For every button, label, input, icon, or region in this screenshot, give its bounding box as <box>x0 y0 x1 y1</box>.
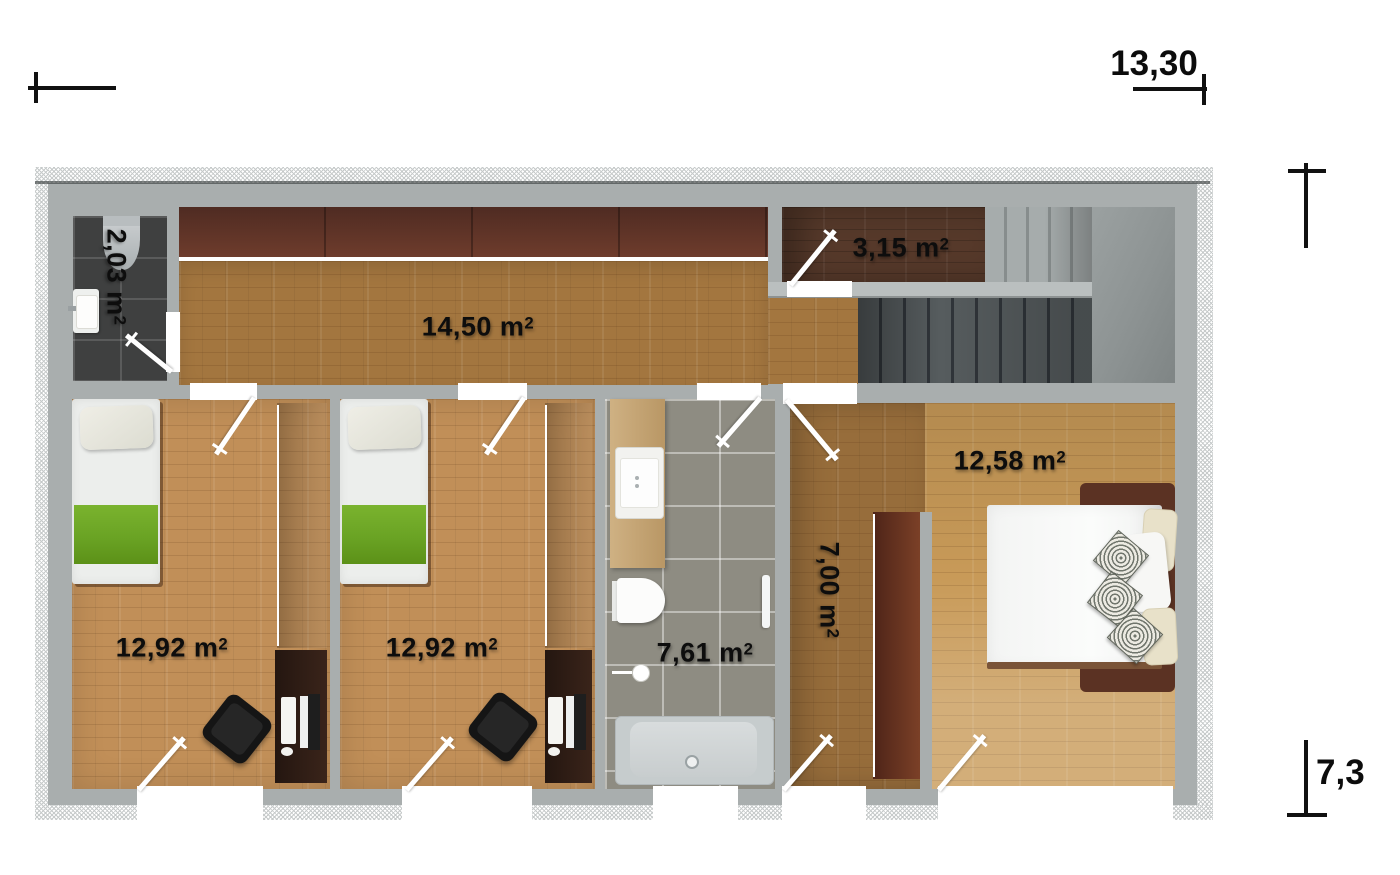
hallway-wardrobe <box>179 207 768 257</box>
wc-sink-basin <box>76 295 98 329</box>
stairs-mid-landing <box>1092 207 1175 383</box>
stairs-upper-flight <box>985 207 1092 282</box>
bedroom-left-keyboard <box>281 697 296 744</box>
room-label-dressing: 7,00 m2 <box>814 542 845 639</box>
window-master-bedroom <box>938 786 1173 821</box>
bathroom-towel-radiator <box>762 575 770 628</box>
door-opening-bedroom-left <box>190 383 257 400</box>
dimension-tick-top-left <box>34 72 38 103</box>
bedroom-middle-pillow <box>347 405 421 451</box>
room-label-bedroom-middle: 12,92 m2 <box>386 633 498 664</box>
room-label-stair-landing: 3,15 m2 <box>853 233 950 264</box>
window-dressing <box>782 786 866 821</box>
bathroom-sink-tap-dot1 <box>635 476 639 480</box>
wall-top-edge-shadow <box>35 181 1210 184</box>
dressing-partial-wall <box>920 512 932 789</box>
bedroom-middle-monitor-back <box>574 694 586 750</box>
dressing-wardrobe <box>873 512 920 779</box>
bathroom-paper-holder <box>632 664 650 682</box>
dimension-label-width: 13,30 <box>1098 44 1210 84</box>
floor-plan: 2,03 m2 14,50 m2 3,15 m2 12,92 m2 12,92 … <box>35 165 1213 820</box>
wall-texture-left <box>35 167 48 820</box>
bedroom-left-wardrobe-door-gap <box>277 405 279 646</box>
bathroom-paper-holder-arm <box>612 671 632 674</box>
dimension-tick-right-bottom <box>1287 813 1327 817</box>
window-bedroom-middle <box>402 786 532 821</box>
dimension-tick-right-top <box>1288 169 1326 173</box>
wc-sink-tap <box>68 306 76 311</box>
dimension-line-top-left <box>28 86 116 90</box>
bedroom-left-wardrobe <box>277 403 327 648</box>
hallway-floor-extension <box>768 296 858 384</box>
bedroom-middle-wardrobe-door-gap <box>545 405 547 646</box>
dimension-label-depth: 7,3 <box>1316 753 1365 793</box>
door-opening-bathroom <box>697 383 761 400</box>
stairs-lower-flight <box>858 296 1092 383</box>
dimension-line-right-bottom <box>1304 740 1308 817</box>
door-opening-stair-landing <box>787 281 852 297</box>
room-label-master: 12,58 m2 <box>954 446 1066 477</box>
bedroom-left-monitor <box>300 696 308 748</box>
wall-texture-right <box>1197 167 1213 820</box>
bathroom-toilet-bowl <box>617 578 665 623</box>
dimension-line-top-right <box>1133 87 1207 91</box>
door-opening-dressing <box>783 383 857 404</box>
bedroom-left-monitor-back <box>308 694 320 750</box>
bathroom-sink-tap-dot2 <box>635 484 639 488</box>
window-bedroom-left <box>137 786 263 821</box>
bedroom-middle-keyboard <box>548 697 563 744</box>
door-opening-wc <box>166 312 180 372</box>
bedroom-left-blanket <box>74 505 158 564</box>
bedroom-middle-monitor <box>566 696 574 748</box>
room-label-bedroom-left: 12,92 m2 <box>116 633 228 664</box>
bathroom-bathtub-drain <box>685 755 699 769</box>
room-label-hallway: 14,50 m2 <box>422 312 534 343</box>
bedroom-middle-wardrobe <box>545 403 592 648</box>
bedroom-middle-mouse <box>548 747 560 756</box>
room-label-wc: 2,03 m2 <box>101 229 132 326</box>
bedroom-middle-blanket <box>342 505 426 564</box>
bedroom-left-pillow <box>79 405 153 451</box>
window-bathroom <box>653 786 738 821</box>
door-opening-bedroom-middle <box>458 383 527 400</box>
bedroom-left-mouse <box>281 747 293 756</box>
bathroom-sink-basin <box>620 458 659 508</box>
room-label-bathroom: 7,61 m2 <box>657 638 754 669</box>
dressing-wardrobe-door-gap <box>873 514 875 777</box>
floor-plan-page: 2,03 m2 14,50 m2 3,15 m2 12,92 m2 12,92 … <box>0 0 1400 875</box>
dimension-line-right-top <box>1304 163 1308 248</box>
